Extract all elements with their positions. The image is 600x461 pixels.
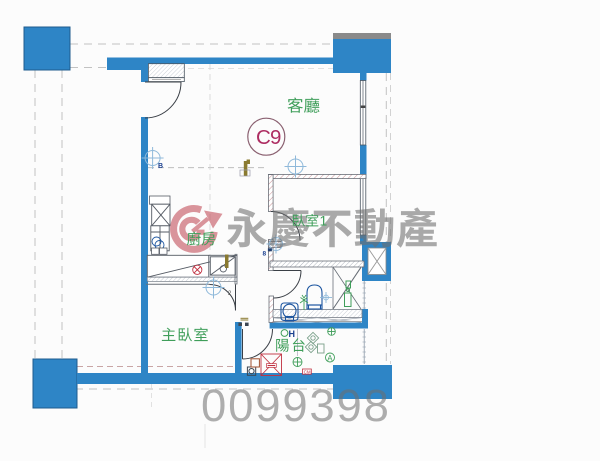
svg-text:0099398: 0099398 xyxy=(201,380,391,431)
svg-text:8: 8 xyxy=(263,251,267,258)
svg-text:A: A xyxy=(327,354,333,363)
svg-text:B: B xyxy=(158,163,163,170)
svg-text:1: 1 xyxy=(320,213,328,229)
svg-text:C9: C9 xyxy=(256,126,281,149)
svg-text:CM: CM xyxy=(304,369,311,374)
svg-text:H: H xyxy=(289,329,296,339)
